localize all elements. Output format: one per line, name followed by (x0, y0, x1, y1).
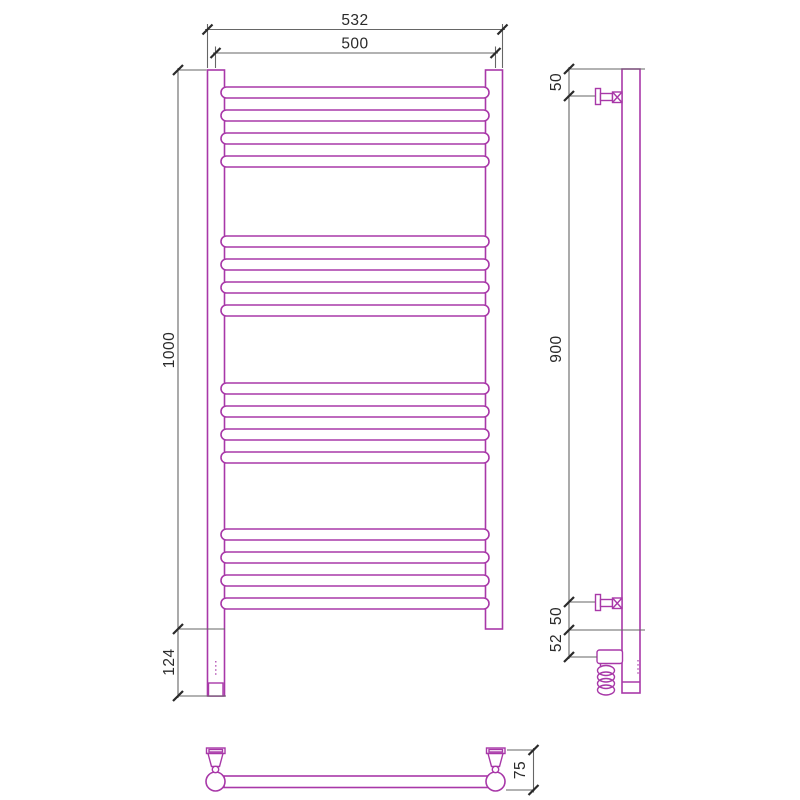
bracket-wall-plate (596, 89, 601, 105)
rung (221, 383, 489, 394)
top-rung-plan (224, 776, 488, 788)
bracket-collar (492, 766, 498, 772)
bottom-view (206, 748, 505, 791)
rung (221, 429, 489, 440)
heating-element-box (597, 650, 623, 664)
bracket-cup (208, 754, 223, 767)
bottom-dimensions: 75 (506, 745, 539, 795)
dim-bracket-span-label: 900 (548, 335, 565, 362)
front-view (208, 70, 503, 696)
rung (221, 282, 489, 293)
right-rail (486, 70, 503, 629)
dim-top-bracket-offset-label: 50 (548, 73, 565, 91)
rung (221, 87, 489, 98)
dim-bottom-extension-label: 124 (161, 648, 178, 675)
side-view (596, 69, 641, 695)
rung (221, 452, 489, 463)
bracket-cup (488, 754, 503, 767)
rung (221, 598, 489, 609)
dim-center-width-label: 500 (341, 36, 368, 53)
rung (221, 156, 489, 167)
drawing-canvas: 532 500 1000 124 (0, 0, 800, 800)
right-rail-section (486, 772, 505, 791)
rung (221, 110, 489, 121)
rung (221, 259, 489, 270)
wall-bracket-bottom (596, 595, 623, 611)
heating-element-end-cap (209, 683, 224, 696)
dim-height-label: 1000 (161, 332, 178, 368)
wall-bracket-left-plan (207, 748, 226, 773)
rung (221, 552, 489, 563)
dim-depth-label: 75 (512, 761, 529, 779)
rung (221, 305, 489, 316)
rung (221, 529, 489, 540)
bracket-collar (212, 766, 218, 772)
bracket-stem (601, 94, 613, 101)
rung (221, 575, 489, 586)
side-tube (622, 69, 640, 693)
dim-outer-width-label: 532 (341, 12, 368, 29)
dim-center-width: 500 (211, 36, 501, 69)
rung (221, 406, 489, 417)
wall-bracket-right-plan (487, 748, 506, 773)
left-rail-section (206, 772, 225, 791)
bracket-stem (601, 600, 613, 607)
dim-element-offset-label: 52 (548, 634, 565, 652)
power-cord-coil (598, 685, 615, 695)
technical-drawing: 532 500 1000 124 (0, 0, 800, 800)
wall-bracket-top (596, 89, 623, 105)
rung (221, 236, 489, 247)
dim-bottom-bracket-offset-label: 50 (548, 607, 565, 625)
bracket-wall-plate (596, 595, 601, 611)
rung (221, 133, 489, 144)
